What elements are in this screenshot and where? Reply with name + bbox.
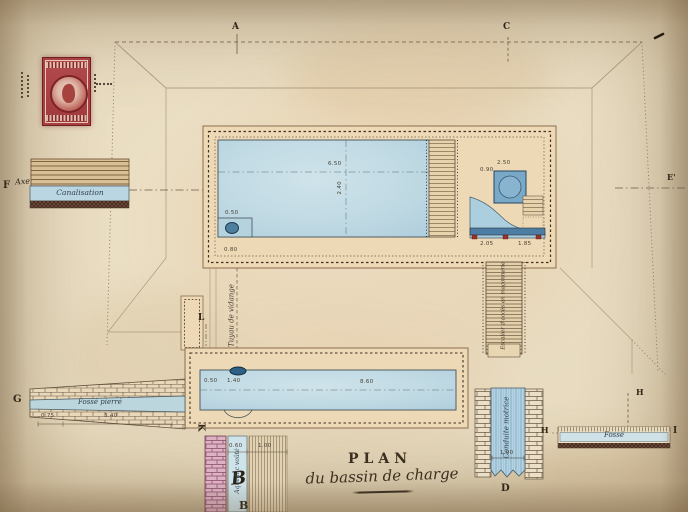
dim-g-a: 0.75 bbox=[41, 414, 54, 420]
stamp-profile-head bbox=[61, 83, 76, 103]
dim-aqueduc-b: 1.00 bbox=[258, 444, 271, 450]
paved-ditch-label: Fossé pierré bbox=[60, 399, 140, 406]
dim-basin-length: 6.50 bbox=[328, 162, 341, 168]
dim-conduite-width: 1.00 bbox=[500, 451, 513, 457]
section-label-c: C bbox=[503, 23, 510, 32]
aqueduct-label: Aqueduc voûté bbox=[235, 416, 241, 512]
main-basin bbox=[203, 126, 556, 268]
canalisation-section-f bbox=[30, 159, 129, 208]
section-label-g: G bbox=[13, 395, 22, 405]
section-label-i: I bbox=[673, 427, 677, 436]
section-label-f: F bbox=[3, 181, 10, 191]
dim-lower-length: 8.60 bbox=[360, 380, 373, 386]
dim-lower-b: 1.40 bbox=[227, 379, 240, 385]
dim-notch-width: 0.50 bbox=[225, 211, 238, 217]
dim-aqueduc-a: 0.60 bbox=[229, 444, 242, 450]
drawing-title: PLAN bbox=[338, 451, 422, 467]
section-label-h-lower: H bbox=[541, 426, 549, 434]
stamp-inscription-top bbox=[46, 62, 87, 68]
pen-mark bbox=[655, 34, 663, 38]
postage-stamp bbox=[42, 57, 91, 126]
dim-g-b: 3.40 bbox=[104, 414, 117, 420]
dim-chamber-b: 1.85 bbox=[518, 242, 531, 248]
stamp-medallion bbox=[50, 75, 88, 113]
section-label-l: L bbox=[198, 314, 204, 323]
section-label-e-prime: E' bbox=[667, 173, 676, 181]
dim-basin-depth: 2.40 bbox=[338, 181, 344, 194]
section-label-d: D bbox=[501, 484, 510, 494]
perforation-dots bbox=[21, 72, 23, 98]
drain-pipe-alignment bbox=[210, 268, 216, 351]
lower-basin bbox=[181, 296, 468, 428]
canalisation-label: Canalisation bbox=[40, 189, 120, 197]
stamp-inscription-bottom bbox=[46, 115, 87, 121]
ladder-strip bbox=[429, 140, 455, 237]
dim-well-offset: 2.50 bbox=[497, 161, 510, 167]
dim-well-size: 0.90 bbox=[480, 168, 493, 174]
axis-label: Axe bbox=[15, 177, 31, 186]
section-label-h-upper: H bbox=[636, 388, 644, 396]
scanned-plan-drawing: A C E' F Axe G L K H H I D B B Canalisat… bbox=[0, 0, 688, 512]
perforation-dots bbox=[27, 75, 29, 97]
dim-chamber-a: 2.05 bbox=[480, 242, 493, 248]
dim-notch-level: 0.80 bbox=[224, 248, 237, 254]
conduite-motrice-label: Conduite motrice bbox=[504, 373, 511, 483]
fosse-label: Fossé bbox=[580, 432, 648, 439]
perforation-dots bbox=[96, 83, 112, 85]
staircase-label: Escalier d'accès en maçonnerie bbox=[501, 251, 507, 361]
section-label-a: A bbox=[232, 23, 239, 32]
section-label-k: K bbox=[195, 424, 204, 432]
drain-pipe-mouth bbox=[226, 223, 239, 234]
dim-lower-a: 0.50 bbox=[204, 379, 217, 385]
drain-pipe-label: Tuyau de vidange bbox=[229, 261, 236, 371]
